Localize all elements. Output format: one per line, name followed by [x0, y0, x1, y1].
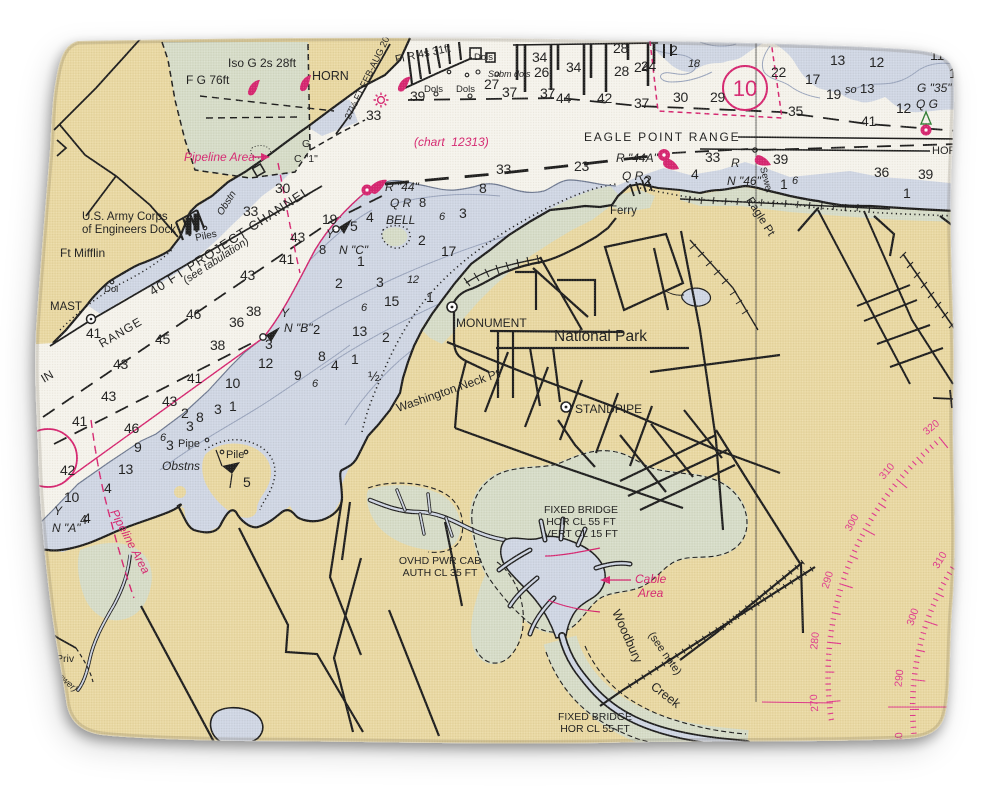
svg-text:16: 16 [927, 30, 942, 46]
svg-text:3: 3 [963, 111, 971, 127]
